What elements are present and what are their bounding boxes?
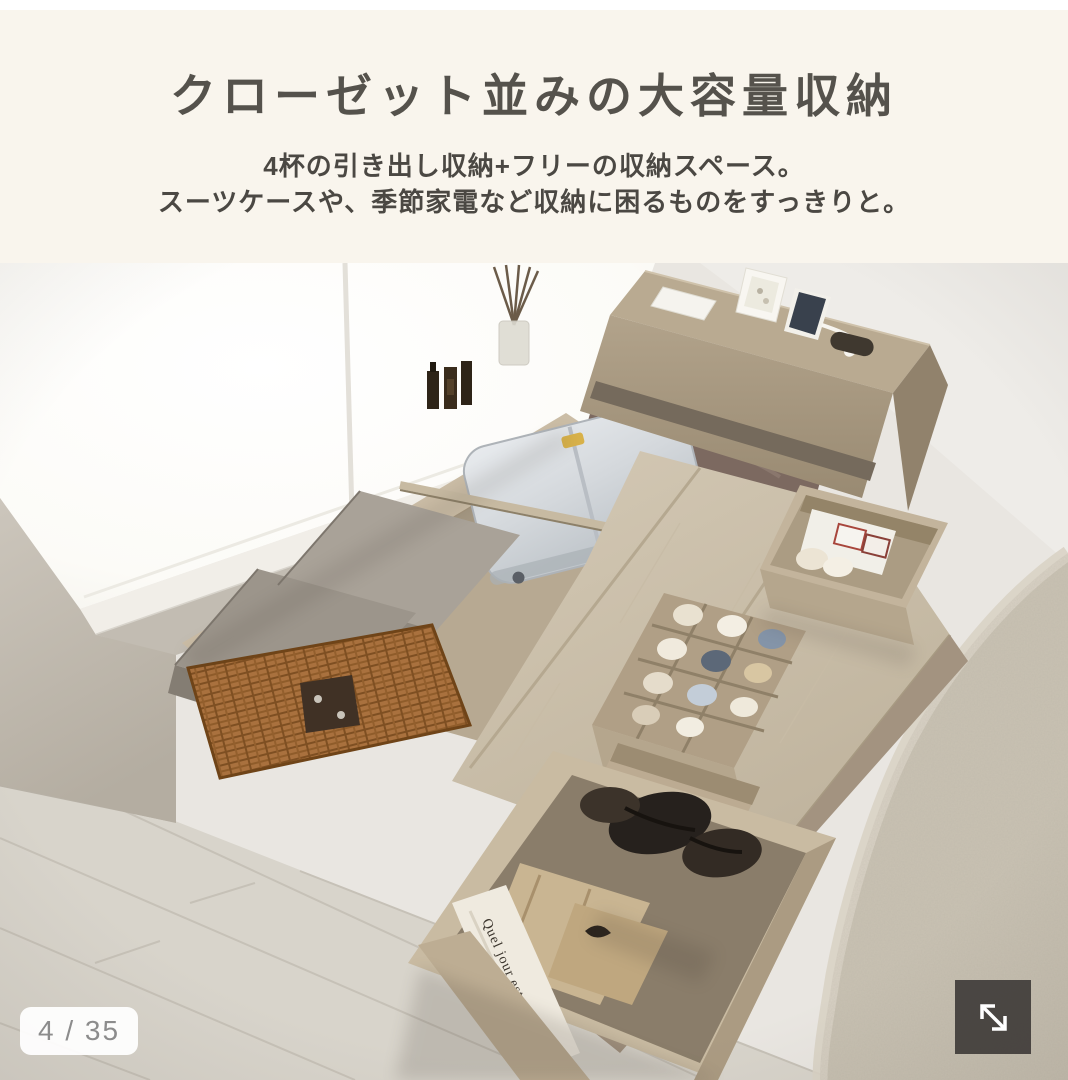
caption-line-1: 4杯の引き出し収納+フリーの収納スペース。 xyxy=(0,148,1068,184)
expand-icon xyxy=(955,980,1031,1054)
product-photo[interactable]: Quel jour est-ce 4 / 35 xyxy=(0,263,1068,1080)
expand-button[interactable] xyxy=(955,980,1031,1054)
page-title: クローゼット並みの大容量収納 xyxy=(0,10,1068,126)
page-indicator: 4 / 35 xyxy=(20,1007,138,1055)
bedroom-scene-illustration: Quel jour est-ce xyxy=(0,263,1068,1080)
caption-panel: クローゼット並みの大容量収納 4杯の引き出し収納+フリーの収納スペース。 スーツ… xyxy=(0,10,1068,263)
caption-line-2: スーツケースや、季節家電など収納に困るものをすっきりと。 xyxy=(0,184,1068,220)
page-indicator-text: 4 / 35 xyxy=(38,1015,120,1047)
gallery-slide: クローゼット並みの大容量収納 4杯の引き出し収納+フリーの収納スペース。 スーツ… xyxy=(0,0,1068,1080)
vignette xyxy=(0,263,1068,1080)
